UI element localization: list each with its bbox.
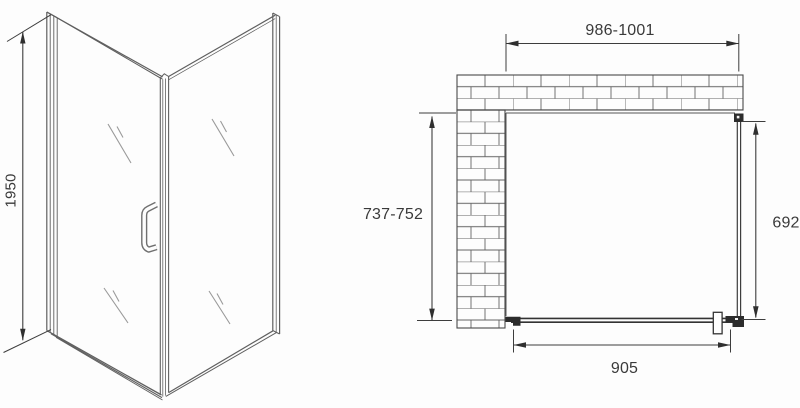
arrowhead-down	[20, 329, 25, 341]
arrowhead-left	[514, 342, 527, 348]
door-handle-plan	[713, 312, 722, 334]
arrowhead-right	[718, 342, 731, 348]
door-handle	[144, 205, 156, 250]
door-bottom-frame	[47, 331, 163, 400]
arrowhead-up	[753, 123, 759, 135]
glass-shine-door-upper	[108, 124, 131, 163]
side-panel-top-edge	[169, 15, 276, 80]
corner-bracket	[726, 316, 745, 327]
perspective-view: 1950	[3, 12, 280, 400]
center-corner-post	[160, 74, 168, 397]
depth-dimension-label: 737-752	[363, 206, 423, 223]
side-glass-panel	[737, 121, 740, 317]
plan-view: 986-1001 737-752 692 905	[363, 22, 800, 377]
glass-edge-line	[57, 18, 161, 79]
width-dimension-label: 986-1001	[585, 22, 654, 39]
frame-line	[51, 334, 162, 398]
connectors	[506, 114, 745, 334]
door-panel	[511, 318, 734, 322]
right-wall-profile-post	[273, 13, 280, 334]
glass-shine-side-lower	[209, 291, 230, 324]
arrowhead-down	[753, 306, 759, 318]
frame-line	[169, 15, 276, 76]
glass-edge-line	[169, 19, 276, 80]
glass-shine-door-lower	[104, 288, 128, 323]
arrowhead-right	[726, 41, 739, 47]
shower-enclosure-drawing: 1950	[0, 0, 800, 408]
door-top-frame	[47, 12, 163, 79]
door-dimension	[514, 330, 731, 353]
frame-line	[169, 331, 273, 393]
arrowhead-down	[429, 309, 435, 321]
arrowhead-up	[429, 116, 435, 128]
side-panel-dimension-label: 692	[772, 215, 799, 232]
technical-drawing-page: 1950	[0, 0, 800, 408]
wall-left	[457, 110, 505, 328]
glass-shine-side-upper	[212, 119, 234, 156]
extension-line	[4, 330, 52, 353]
side-panel-dimension	[742, 122, 766, 320]
frame-line	[47, 331, 162, 395]
left-wall-profile-post	[47, 12, 57, 337]
corner-bracket-notch	[735, 318, 738, 320]
frame-line	[56, 337, 163, 400]
width-dimension	[506, 34, 739, 72]
wall-top	[457, 75, 743, 110]
wall-bracket-top-notch	[737, 116, 740, 119]
extension-line	[7, 15, 51, 42]
door-dimension-label: 905	[611, 360, 638, 377]
height-dimension-label: 1950	[3, 173, 20, 207]
arrowhead-left	[506, 41, 519, 47]
hinge-bracket	[506, 317, 521, 326]
frame-line	[166, 333, 277, 397]
wall-profile-lines	[506, 113, 735, 316]
side-panel-bottom-frame	[166, 331, 277, 397]
